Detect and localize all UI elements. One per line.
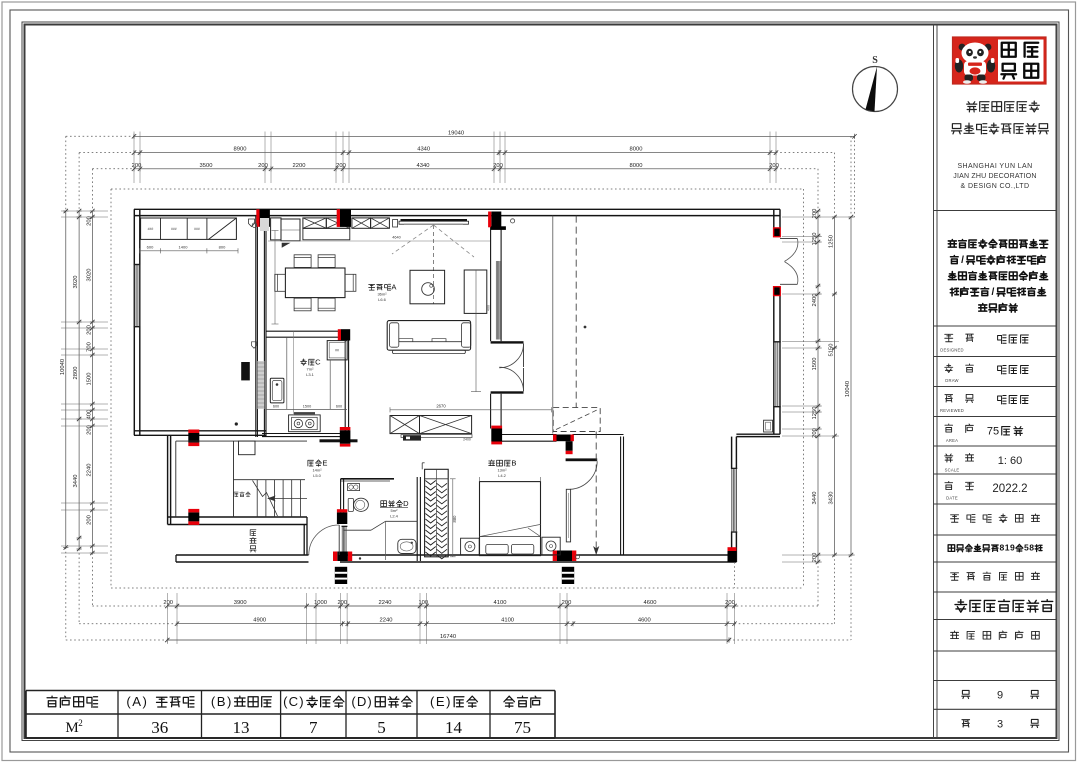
svg-text:200: 200 <box>337 600 347 606</box>
svg-text:200: 200 <box>86 425 92 435</box>
svg-text:3020: 3020 <box>86 269 92 282</box>
svg-text:200: 200 <box>258 163 268 169</box>
svg-text:): ) <box>142 694 146 709</box>
svg-text:4340: 4340 <box>417 147 430 153</box>
svg-text:2670: 2670 <box>436 403 446 408</box>
svg-text:L4.2: L4.2 <box>498 473 507 478</box>
svg-text:8000: 8000 <box>630 147 643 153</box>
svg-text:7: 7 <box>309 718 318 737</box>
svg-text:(: ( <box>283 694 288 709</box>
svg-text:200: 200 <box>812 553 818 563</box>
svg-text:600: 600 <box>336 405 342 409</box>
svg-text:36: 36 <box>151 718 168 737</box>
svg-text:200: 200 <box>493 163 503 169</box>
svg-text:2: 2 <box>78 718 83 728</box>
svg-text:200: 200 <box>86 325 92 335</box>
svg-text:1500: 1500 <box>812 358 818 371</box>
svg-text:8: 8 <box>999 543 1004 553</box>
svg-text:200: 200 <box>562 600 572 606</box>
svg-text:2240: 2240 <box>86 464 92 477</box>
svg-text:7m²: 7m² <box>307 367 315 372</box>
svg-text:8000: 8000 <box>630 163 643 169</box>
svg-text:4640: 4640 <box>392 236 400 240</box>
svg-text:DATE: DATE <box>946 496 958 501</box>
svg-text:200: 200 <box>86 515 92 525</box>
svg-text:16740: 16740 <box>440 634 456 640</box>
svg-text:4340: 4340 <box>417 163 430 169</box>
svg-text:1400: 1400 <box>179 245 189 250</box>
svg-text:3430: 3430 <box>829 492 835 505</box>
svg-text:5: 5 <box>377 718 386 737</box>
svg-text:200: 200 <box>163 600 173 606</box>
svg-text:2240: 2240 <box>379 600 392 606</box>
svg-text:9: 9 <box>997 690 1003 702</box>
svg-text:2400: 2400 <box>812 294 818 307</box>
svg-text:D: D <box>357 694 366 709</box>
svg-text:JIAN ZHU DECORATION: JIAN ZHU DECORATION <box>953 173 1036 180</box>
svg-text:S: S <box>872 55 878 66</box>
svg-text:L3.1: L3.1 <box>306 372 315 377</box>
svg-text:13: 13 <box>233 718 250 737</box>
svg-text:2022.2: 2022.2 <box>992 483 1027 495</box>
svg-text:(: ( <box>126 694 131 709</box>
svg-text:B: B <box>511 458 516 467</box>
svg-text:(: ( <box>430 694 435 709</box>
svg-text:800: 800 <box>219 245 226 250</box>
svg-text:3900: 3900 <box>234 600 247 606</box>
svg-text:E: E <box>436 694 445 709</box>
svg-text:2200: 2200 <box>293 163 306 169</box>
svg-text:1: 1 <box>1005 543 1010 553</box>
svg-text:400: 400 <box>86 410 92 420</box>
svg-text:10040: 10040 <box>60 359 66 375</box>
svg-text:14: 14 <box>445 718 463 737</box>
svg-text:L6.6: L6.6 <box>378 297 387 302</box>
svg-text:SHANGHAI YUN LAN: SHANGHAI YUN LAN <box>957 163 1032 170</box>
svg-text:##: ## <box>335 349 339 353</box>
svg-text:880: 880 <box>452 515 457 523</box>
svg-text:M: M <box>65 720 78 736</box>
svg-text:4100: 4100 <box>501 618 514 624</box>
svg-text:AREA: AREA <box>946 438 958 443</box>
svg-text:): ) <box>227 694 231 709</box>
svg-text:A: A <box>132 694 141 709</box>
svg-text:36m²: 36m² <box>377 292 387 297</box>
svg-text:D: D <box>403 499 409 508</box>
svg-text:(: ( <box>351 694 356 709</box>
svg-text:C: C <box>289 694 298 709</box>
svg-text:): ) <box>299 694 303 709</box>
svg-text:200: 200 <box>336 163 346 169</box>
svg-text:###: ### <box>148 227 154 231</box>
svg-text:75: 75 <box>514 718 531 737</box>
svg-text:5: 5 <box>1024 543 1029 553</box>
svg-text:3440: 3440 <box>73 475 79 488</box>
svg-text:10040: 10040 <box>845 381 851 397</box>
svg-text:700: 700 <box>86 342 92 352</box>
svg-text:4600: 4600 <box>638 618 651 624</box>
svg-text:200: 200 <box>86 216 92 226</box>
svg-text:600: 600 <box>273 405 279 409</box>
svg-text:E: E <box>322 458 327 467</box>
svg-text:8: 8 <box>1029 543 1034 553</box>
svg-text:1500: 1500 <box>86 373 92 386</box>
svg-text:(: ( <box>211 694 216 709</box>
svg-text:14m²: 14m² <box>312 468 322 473</box>
svg-text:200: 200 <box>769 163 779 169</box>
svg-text:1: 60: 1: 60 <box>998 455 1022 467</box>
svg-text:9: 9 <box>1010 543 1015 553</box>
svg-text:3440: 3440 <box>812 492 818 505</box>
svg-text:1500: 1500 <box>303 405 311 409</box>
svg-text:DRAW: DRAW <box>945 378 958 383</box>
svg-text:3500: 3500 <box>200 163 213 169</box>
svg-text:1250: 1250 <box>812 407 818 420</box>
svg-text:5m²: 5m² <box>391 508 399 513</box>
svg-text:B: B <box>217 694 226 709</box>
svg-text:4600: 4600 <box>644 600 657 606</box>
svg-text:4900: 4900 <box>253 618 266 624</box>
svg-text:/: / <box>992 287 995 298</box>
svg-text:###: ### <box>171 227 177 231</box>
svg-text:2400: 2400 <box>463 437 471 441</box>
svg-text:75: 75 <box>987 426 999 438</box>
svg-text:###: ### <box>194 227 200 231</box>
svg-text:DESIGNED: DESIGNED <box>940 348 963 353</box>
svg-text:1250: 1250 <box>829 235 835 248</box>
svg-text:5150: 5150 <box>829 344 835 357</box>
svg-text:): ) <box>367 694 371 709</box>
svg-text:4100: 4100 <box>494 600 507 606</box>
svg-text:): ) <box>446 694 450 709</box>
svg-text:L5.0: L5.0 <box>313 473 322 478</box>
svg-text:1250: 1250 <box>812 233 818 246</box>
svg-text:19040: 19040 <box>448 130 464 136</box>
svg-text:REVIEWED: REVIEWED <box>940 408 964 413</box>
svg-text:C: C <box>315 357 321 366</box>
svg-text:8900: 8900 <box>234 147 247 153</box>
svg-text:2240: 2240 <box>380 618 393 624</box>
svg-text:3: 3 <box>997 719 1003 731</box>
svg-text:200: 200 <box>725 600 735 606</box>
svg-text:/: / <box>961 255 964 266</box>
svg-text:3020: 3020 <box>73 276 79 289</box>
svg-text:400: 400 <box>487 305 491 311</box>
svg-text:L2.4: L2.4 <box>390 514 399 519</box>
svg-text:& DESIGN CO.,LTD: & DESIGN CO.,LTD <box>961 183 1030 190</box>
svg-text:2800: 2800 <box>73 367 79 380</box>
svg-text:200: 200 <box>812 428 818 438</box>
svg-text:SCALE: SCALE <box>945 468 960 473</box>
svg-text:600: 600 <box>147 245 154 250</box>
svg-text:13m²: 13m² <box>497 468 507 473</box>
